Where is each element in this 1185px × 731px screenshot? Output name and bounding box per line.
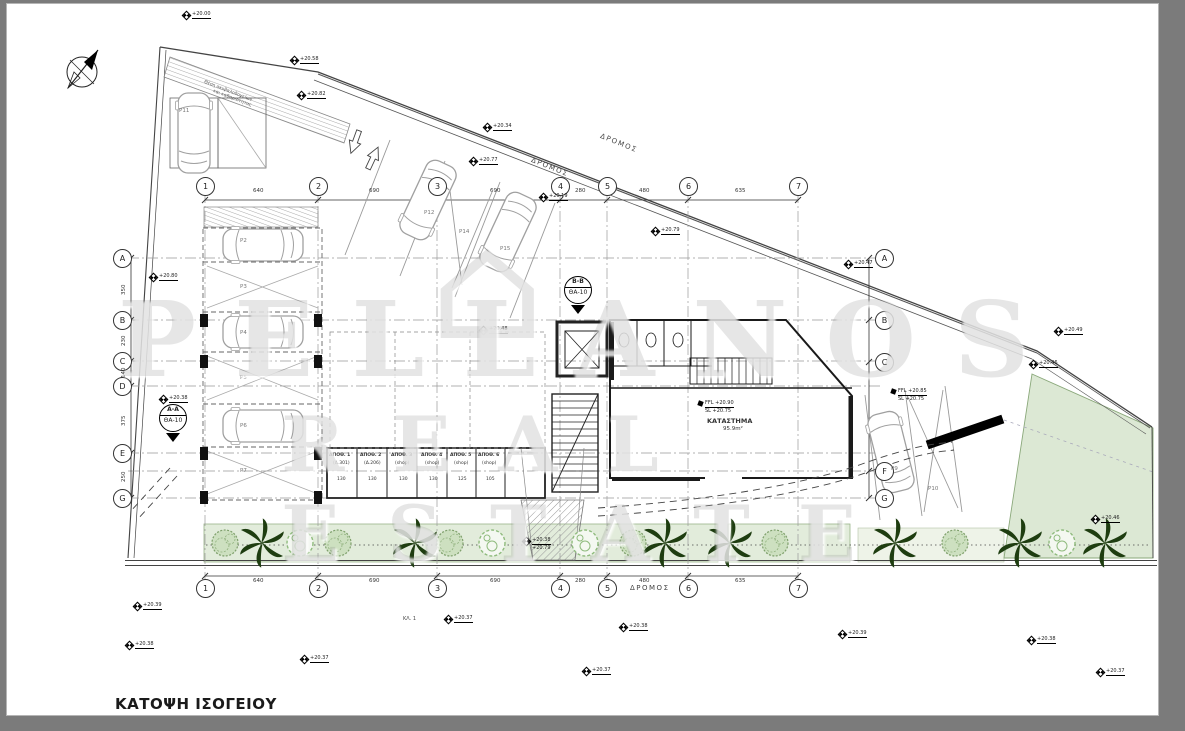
drawing-canvas: [6, 3, 1159, 716]
drawing-title: ΚΑΤΟΨΗ ΙΣΟΓΕΙΟΥ: [115, 695, 277, 713]
viewer-background: 11223344556677ABCDEGABCFG640690690280480…: [0, 0, 1185, 731]
